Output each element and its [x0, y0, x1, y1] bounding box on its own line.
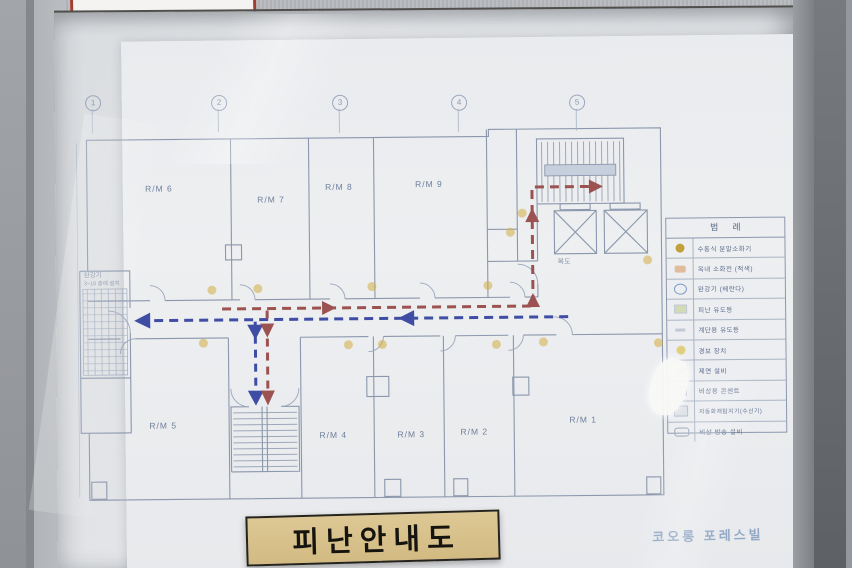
door-arcs [108, 264, 573, 408]
legend-label: 피난 유도등 [694, 304, 733, 314]
descender-icon [667, 279, 694, 299]
legend-label: 계단용 유도등 [694, 324, 739, 334]
legend-row: 옥내 소화전 (적색) [667, 258, 785, 280]
wall-shadow-right [814, 0, 846, 568]
evacuation-route-primary [143, 317, 569, 395]
descender-note: 3~10 층에 설치 [84, 279, 120, 287]
room-label: R/M 7 [257, 194, 285, 204]
central-staircase [233, 408, 298, 470]
grid-marker-5: 5 [569, 95, 585, 111]
legend-row: 자동화재탐지기(수신기) [668, 401, 786, 423]
legend-label: 경보 장치 [694, 345, 726, 355]
descender-label: 완강기 [84, 269, 102, 279]
room-label: R/M 3 [397, 429, 425, 439]
legend-label: 비상 방송 설비 [695, 426, 743, 436]
grid-marker-number: 1 [91, 98, 96, 107]
room-label: R/M 8 [325, 182, 353, 192]
stair-light-icon [667, 320, 694, 340]
room-label: R/M 1 [569, 414, 597, 424]
legend-label: 자동화재탐지기(수신기) [695, 406, 762, 416]
room-label: R/M 2 [460, 426, 488, 436]
evacuation-route-secondary [221, 186, 595, 394]
grid-marker-number: 2 [217, 98, 222, 107]
legend: 범례 수동식 분말소화기 옥내 소화전 (적색) 완강기 (베란다) 피난 유도… [665, 217, 787, 434]
legend-row: 완강기 (베란다) [667, 278, 785, 300]
grid-marker-3: 3 [332, 95, 348, 111]
grid-marker-number: 4 [457, 98, 462, 107]
title-plate: 피난안내도 [245, 509, 500, 566]
legend-row: 경보 장치 [667, 340, 785, 362]
room-label: R/M 5 [149, 420, 177, 430]
broadcast-icon [668, 422, 695, 442]
left-staircase [83, 289, 128, 375]
room-label: R/M 9 [415, 179, 443, 189]
wall-panel-right [846, 0, 852, 568]
legend-label: 비상용 콘센트 [695, 385, 740, 395]
extinguisher-icon [666, 238, 693, 258]
room-label: R/M 6 [145, 183, 173, 193]
legend-label: 옥내 소화전 (적색) [694, 263, 753, 274]
stair-landing [545, 164, 616, 176]
legend-row: 피난 유도등 [667, 299, 785, 321]
legend-row: 계단용 유도등 [667, 319, 785, 341]
grid-marker-4: 4 [451, 95, 467, 111]
legend-label: 수동식 분말소화기 [693, 243, 751, 254]
legend-label: 제연 설비 [695, 365, 727, 375]
legend-label: 완강기 (베란다) [694, 283, 745, 293]
room-label: R/M 4 [319, 430, 347, 440]
legend-title: 범례 [666, 218, 784, 239]
evacuation-route-secondary-arrows [259, 179, 605, 405]
evacuation-route-primary-arrows [134, 310, 415, 407]
exit-light-icon [667, 300, 694, 320]
title-text: 피난안내도 [285, 515, 462, 562]
grid-marker-1: 1 [85, 95, 101, 111]
legend-row: 비상 방송 설비 [668, 421, 786, 442]
corridor-label: 복도 [558, 257, 571, 267]
hydrant-icon [667, 259, 694, 279]
legend-row: 수동식 분말소화기 [666, 238, 784, 260]
photo-background: 1 2 3 4 5 R/M 6 R/M 7 R/M 8 R/M 9 R/M 5 … [0, 0, 852, 568]
grid-marker-number: 5 [575, 98, 580, 107]
grid-marker-2: 2 [211, 95, 227, 111]
brand-text: 코오롱 포레스빌 [652, 524, 764, 546]
grid-marker-number: 3 [338, 98, 343, 107]
wall-edge-right [793, 0, 814, 568]
floor-plan: 1 2 3 4 5 R/M 6 R/M 7 R/M 8 R/M 9 R/M 5 … [0, 0, 852, 568]
